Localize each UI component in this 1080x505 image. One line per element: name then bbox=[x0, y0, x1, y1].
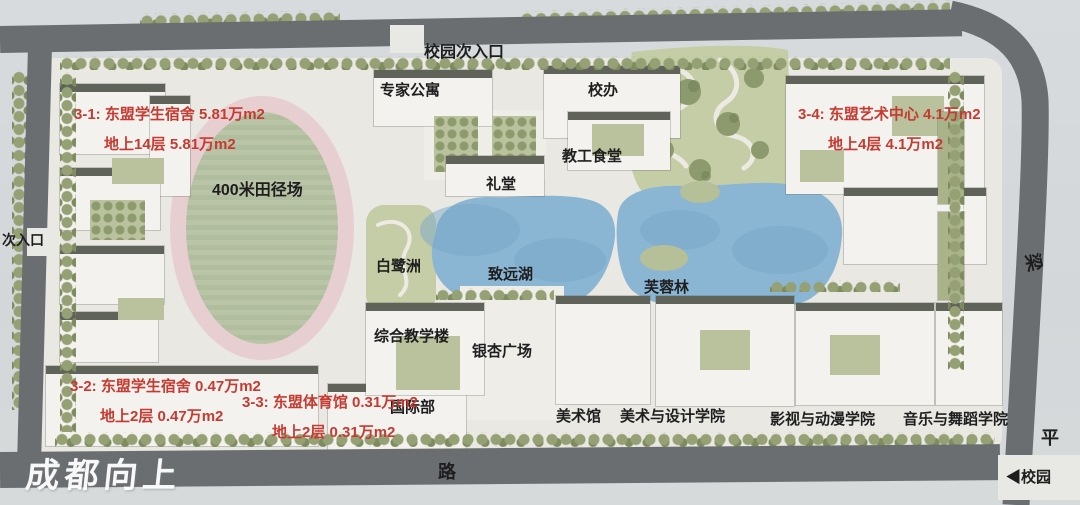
entrance-label-left: 次入口 bbox=[2, 232, 44, 248]
lawn bbox=[830, 335, 880, 375]
label-auditorium: 礼堂 bbox=[486, 176, 516, 193]
label-school-office: 校办 bbox=[588, 82, 618, 99]
lawn bbox=[700, 330, 750, 370]
courtyard-grove bbox=[90, 200, 145, 240]
label-film-animation-college: 影视与动漫学院 bbox=[770, 411, 875, 428]
lawn bbox=[118, 298, 164, 320]
road-name-bottom: 路 bbox=[438, 462, 456, 483]
tree-row bbox=[60, 56, 950, 70]
annotation-3-4-line2: 地上4层 4.1万m2 bbox=[798, 130, 981, 160]
annotation-3-4: 3-4: 东盟艺术中心 4.1万m2 地上4层 4.1万m2 bbox=[798, 100, 981, 160]
label-staff-canteen: 教工食堂 bbox=[562, 148, 622, 165]
label-art-museum: 美术馆 bbox=[556, 408, 601, 425]
annotation-3-1-line2: 地上14层 5.81万m2 bbox=[74, 130, 265, 160]
label-teaching-building: 综合教学楼 bbox=[374, 328, 449, 345]
entrance-label-bottom-right: ◀校园 bbox=[1006, 469, 1051, 486]
annotation-3-3-line1: 3-3: 东盟体育馆 0.31万m2 bbox=[242, 394, 418, 411]
arts-center-3-4-annex bbox=[844, 188, 986, 264]
annotation-3-2: 3-2: 东盟学生宿舍 0.47万m2 地上2层 0.47万m2 bbox=[70, 372, 261, 432]
art-museum-building bbox=[556, 296, 650, 404]
top-entrance-gap bbox=[390, 25, 424, 53]
annotation-3-3-line2: 地上2层 0.31万m2 bbox=[242, 418, 418, 448]
annotation-3-4-line1: 3-4: 东盟艺术中心 4.1万m2 bbox=[798, 106, 981, 123]
campus-master-plan-map: 校园次入口 次入口 专家公寓 校办 教工食堂 礼堂 400米田径场 白鹭洲 致远… bbox=[0, 0, 1080, 505]
annotation-3-2-line1: 3-2: 东盟学生宿舍 0.47万m2 bbox=[70, 378, 261, 395]
tree-row bbox=[770, 280, 900, 292]
label-egret-isle: 白鹭洲 bbox=[376, 258, 421, 275]
tree-row bbox=[436, 288, 554, 300]
road-name-right-upper: 梁 bbox=[1021, 251, 1045, 273]
label-track: 400米田径场 bbox=[212, 182, 303, 200]
annotation-3-2-line2: 地上2层 0.47万m2 bbox=[70, 402, 261, 432]
label-music-dance-college: 音乐与舞蹈学院 bbox=[903, 411, 1008, 428]
label-art-design-college: 美术与设计学院 bbox=[620, 408, 725, 425]
annotation-3-1-line1: 3-1: 东盟学生宿舍 5.81万m2 bbox=[74, 106, 265, 123]
annotation-3-1: 3-1: 东盟学生宿舍 5.81万m2 地上14层 5.81万m2 bbox=[74, 100, 265, 160]
label-ginkgo-square: 银杏广场 bbox=[472, 343, 532, 360]
entrance-label-top: 校园次入口 bbox=[424, 44, 504, 62]
label-lake: 致远湖 bbox=[488, 266, 533, 283]
road-name-right-lower: 平 bbox=[1041, 428, 1059, 449]
music-dance-college-building bbox=[936, 303, 1002, 405]
label-hibiscus-forest: 芙蓉林 bbox=[644, 279, 689, 296]
annotation-3-3: 3-3: 东盟体育馆 0.31万m2 地上2层 0.31万m2 bbox=[242, 388, 418, 448]
watermark: 成都向上 bbox=[23, 448, 184, 497]
label-expert-apartment: 专家公寓 bbox=[380, 82, 440, 99]
lawn bbox=[112, 158, 164, 184]
